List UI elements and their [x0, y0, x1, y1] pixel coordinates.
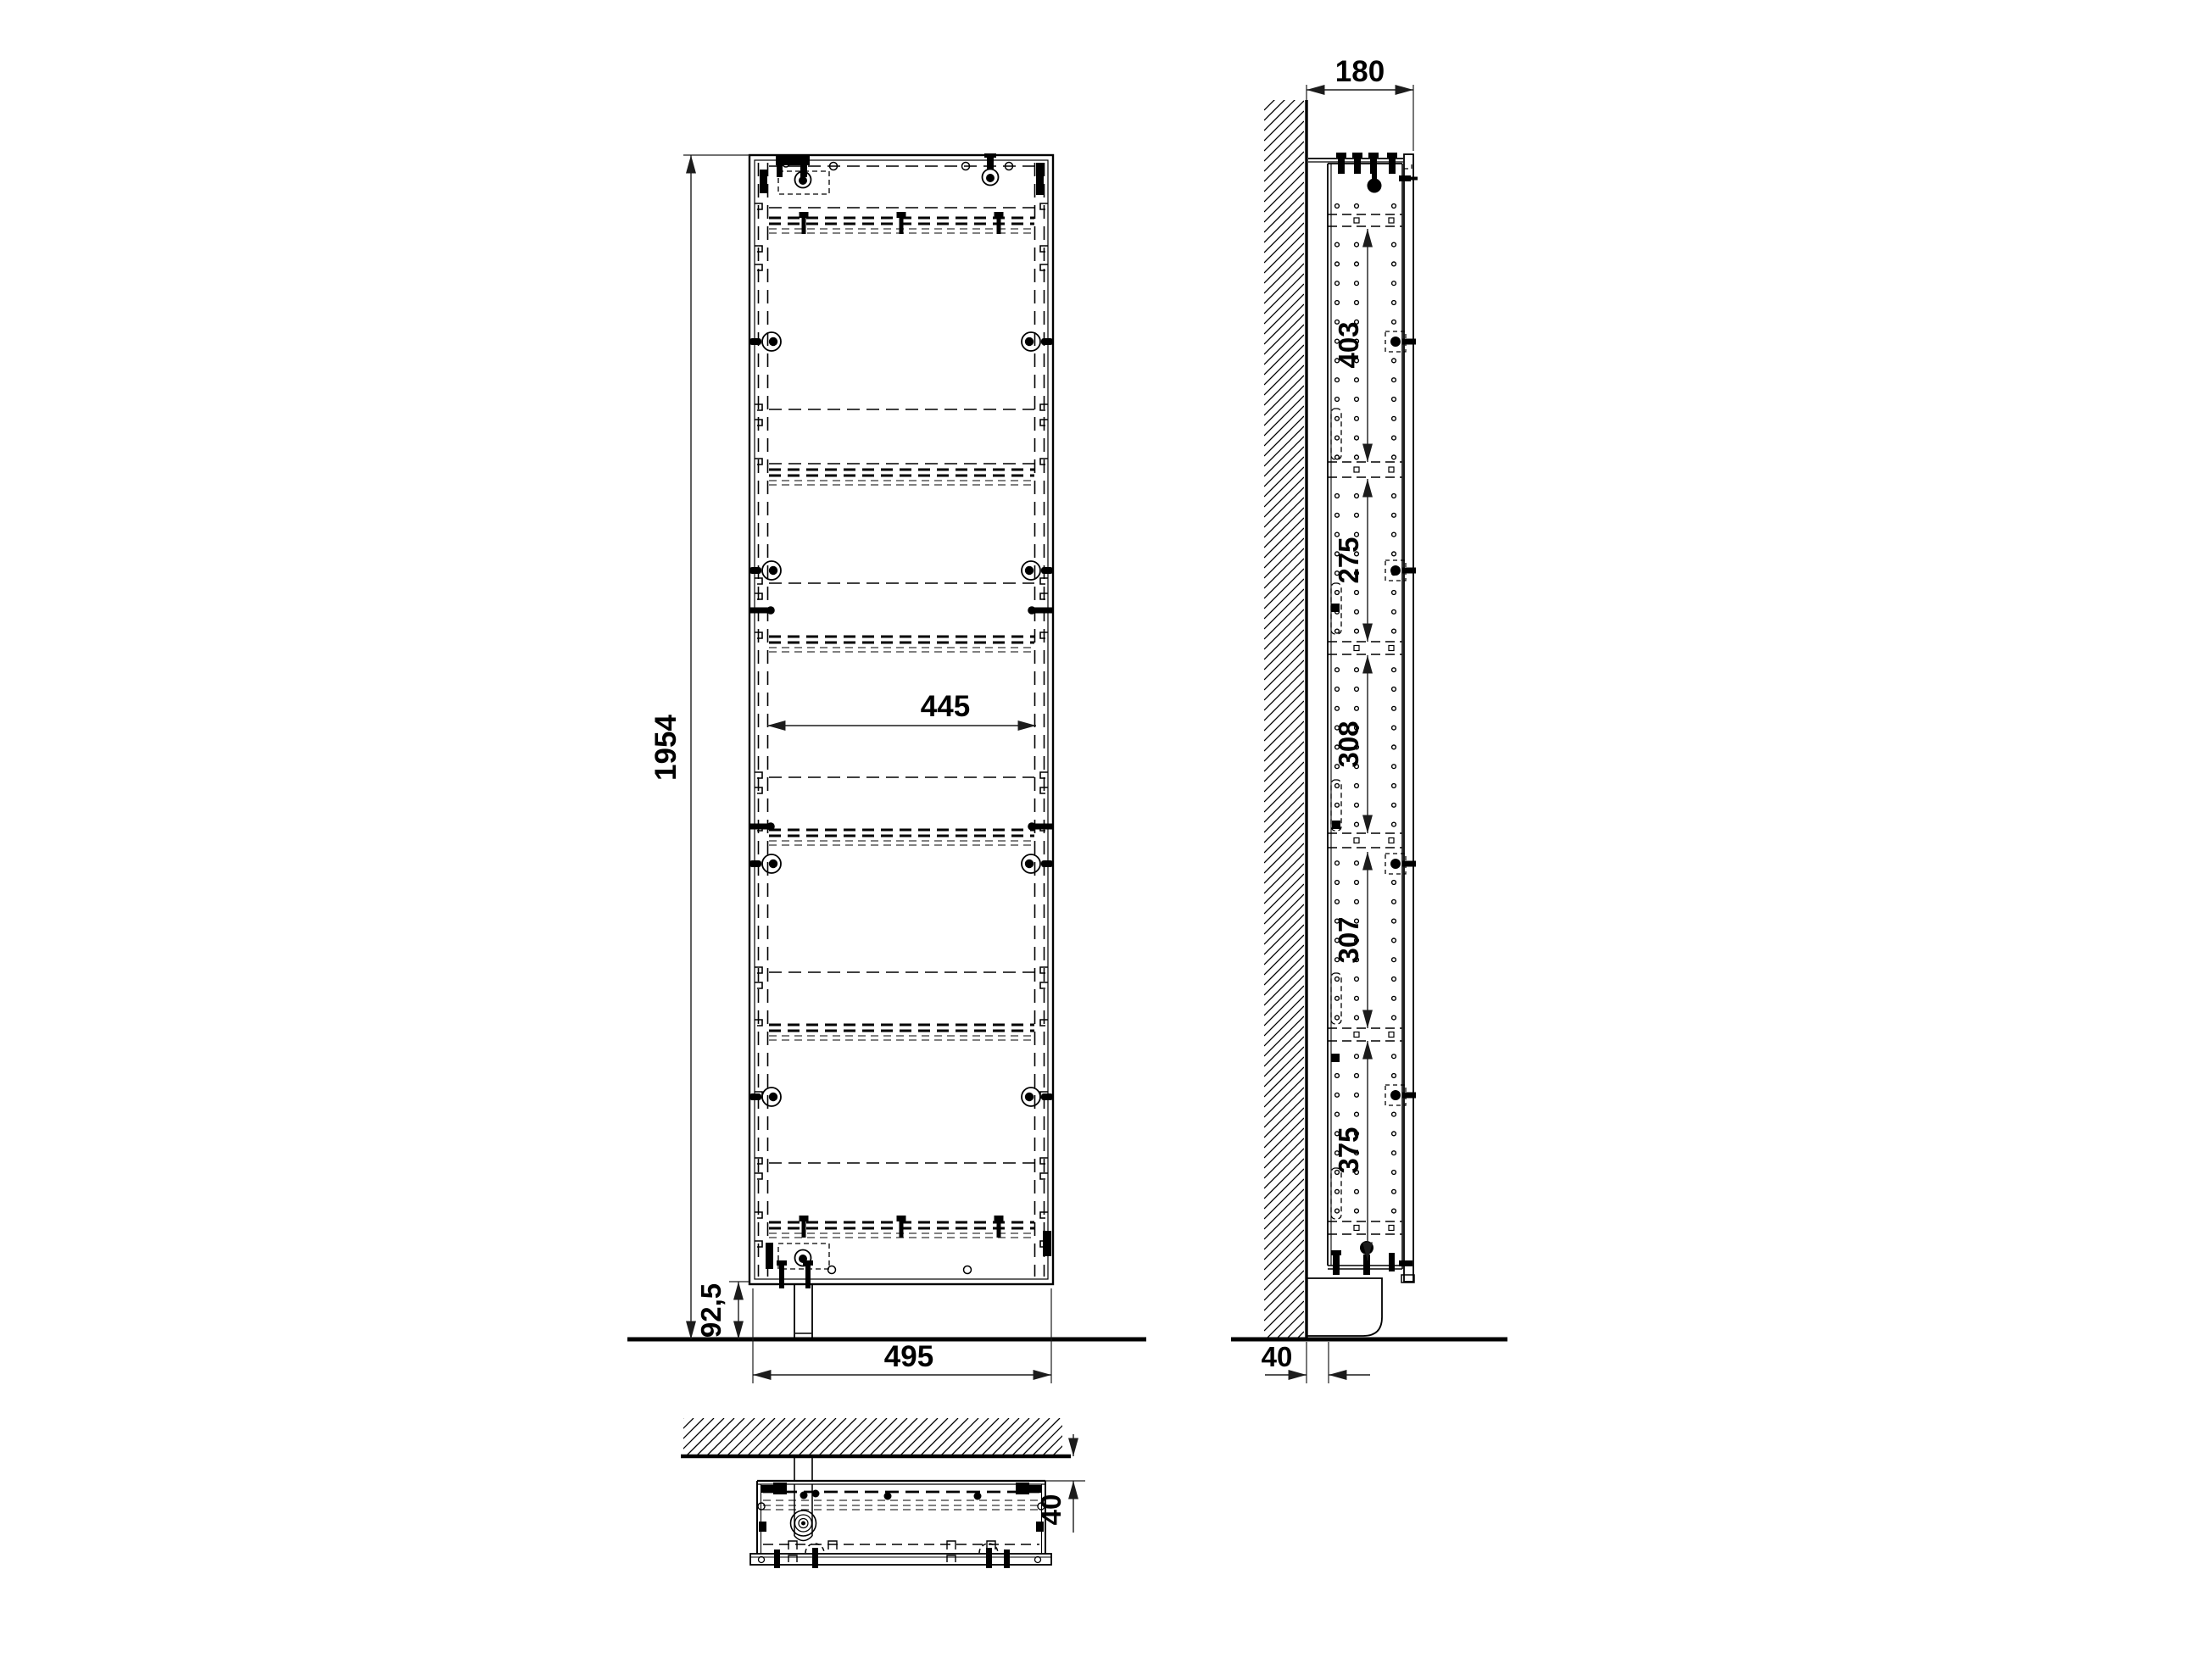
hatch-line: [1264, 823, 1304, 863]
hinge-pin: [1402, 568, 1416, 574]
side-bolt: [1034, 608, 1052, 614]
shelf-fitting: [1354, 467, 1359, 472]
hatch-line: [1264, 162, 1304, 202]
hatch-line: [1264, 335, 1304, 375]
hatch-line: [1012, 1418, 1050, 1455]
system-hole: [1392, 242, 1396, 247]
system-hole: [1355, 281, 1359, 286]
system-hole: [1335, 242, 1340, 247]
system-hole: [1355, 977, 1359, 982]
hatch-line: [1264, 264, 1304, 303]
hatch-line: [1264, 131, 1304, 171]
system-hole: [1392, 513, 1396, 517]
hatch-line: [1264, 915, 1304, 954]
side-bottom-hardware: [1331, 1241, 1412, 1275]
system-hole: [1392, 1015, 1396, 1020]
hatch-line: [931, 1418, 968, 1455]
hatch-line: [839, 1418, 877, 1455]
system-hole: [1392, 784, 1396, 788]
hatch-line: [1264, 813, 1304, 853]
foot-center: [801, 1522, 805, 1526]
hatch-line: [1264, 528, 1304, 568]
fixing-pin-head: [800, 1216, 809, 1221]
system-hole: [1355, 1054, 1359, 1059]
hinge-pin: [1402, 861, 1416, 867]
fitting-bracket: [1040, 578, 1048, 584]
system-hole: [1335, 262, 1340, 266]
fixing-pin-head: [897, 1216, 906, 1221]
door-slab: [1404, 154, 1413, 1282]
hatch-line: [1264, 1037, 1304, 1077]
system-hole: [1355, 1093, 1359, 1097]
hinge-axis: [1390, 859, 1401, 869]
hatch-line: [880, 1418, 917, 1455]
system-hole: [1392, 1151, 1396, 1155]
hinge-pin: [749, 338, 761, 345]
dimension-label-width: 495: [884, 1340, 933, 1373]
front-carcass-edges-hidden: [759, 163, 1045, 1277]
system-hole: [1335, 532, 1340, 537]
system-hole: [1335, 1074, 1340, 1078]
hatch-line: [1264, 487, 1304, 527]
system-hole: [1355, 398, 1359, 402]
system-hole: [1335, 629, 1340, 633]
hatch-line: [1264, 1067, 1304, 1107]
system-hole: [1392, 1189, 1396, 1193]
back-fitting: [1332, 821, 1340, 829]
system-hole: [1355, 706, 1359, 710]
system-hole: [1392, 706, 1396, 710]
hatch-line: [1264, 142, 1304, 181]
dimension-label-height: 1954: [649, 715, 683, 781]
hatch-line: [1264, 152, 1304, 192]
front-screw-tip: [1411, 177, 1418, 181]
system-hole: [1335, 977, 1340, 982]
hatch-line: [1264, 437, 1304, 476]
side-bolt: [1034, 824, 1052, 830]
hinge-pin: [1402, 1093, 1416, 1099]
clip: [947, 1541, 956, 1550]
hatch-line: [941, 1418, 978, 1455]
system-hole: [1355, 436, 1359, 440]
hatch-line: [1264, 579, 1304, 619]
shelf-fitting: [1389, 1032, 1394, 1038]
bolt-head: [1387, 153, 1397, 158]
hatch-line: [1264, 538, 1304, 578]
fixing-pin-head: [897, 212, 906, 218]
hatch-line: [1264, 904, 1304, 944]
hatch-line: [1264, 1108, 1304, 1148]
technical-drawing-canvas: 1954 92,5 445 495 180: [0, 0, 2212, 1658]
hinge-pin: [1004, 1550, 1010, 1568]
front-foot: [794, 1284, 812, 1338]
system-hole: [1335, 996, 1340, 1000]
hatch-line: [1264, 986, 1304, 1026]
hatch-line: [1264, 1077, 1304, 1117]
hanger-cam-pin: [986, 174, 995, 182]
front-side-bolts: [750, 606, 1052, 831]
hatch-line: [707, 1418, 744, 1455]
shelf-fitting: [1389, 838, 1394, 843]
system-hole: [1392, 629, 1396, 633]
side-bolt-tip: [1028, 822, 1036, 831]
system-hole: [1392, 378, 1396, 382]
hatch-line: [727, 1418, 765, 1455]
system-hole: [1392, 301, 1396, 305]
hatch-line: [1264, 650, 1304, 690]
bolt: [1389, 1253, 1395, 1271]
system-hole: [1355, 455, 1359, 459]
bolt-head: [1352, 153, 1362, 158]
hatch-line: [809, 1418, 846, 1455]
system-hole: [1392, 881, 1396, 885]
dowel: [812, 1490, 820, 1498]
hinge-pin: [1041, 860, 1053, 867]
hatch-line: [1264, 498, 1304, 537]
hinge-axis: [1390, 337, 1401, 347]
system-hole: [1392, 919, 1396, 923]
hatch-line: [1264, 589, 1304, 629]
system-hole: [1355, 822, 1359, 826]
hatch-line: [1264, 803, 1304, 843]
hatch-line: [1033, 1418, 1070, 1455]
system-hole: [1355, 204, 1359, 209]
system-hole: [1355, 591, 1359, 595]
hatch-line: [1264, 1159, 1304, 1199]
shelf-fitting: [1389, 218, 1394, 223]
system-hole: [1392, 416, 1396, 420]
hatch-line: [1264, 1006, 1304, 1046]
system-hole: [1355, 1074, 1359, 1078]
system-hole: [1335, 1112, 1340, 1116]
system-hole: [1335, 591, 1340, 595]
fitting-bracket: [1040, 1173, 1048, 1179]
hinge-pin: [1402, 339, 1416, 345]
hatch-line: [850, 1418, 887, 1455]
hatch-line: [1264, 325, 1304, 364]
dimension-label-shelf-3: 308: [1333, 721, 1364, 767]
hinge-axis: [769, 337, 777, 346]
hanger-cam-pin: [799, 176, 807, 185]
side-bolt-tip: [1028, 606, 1036, 615]
system-hole: [1392, 609, 1396, 614]
hatch-line: [717, 1418, 755, 1455]
hatch-line: [1264, 192, 1304, 232]
system-hole: [1392, 359, 1396, 363]
hatch-line: [1264, 1118, 1304, 1158]
hatch-line: [1264, 772, 1304, 812]
hatch-line: [951, 1418, 989, 1455]
hatch-line: [1264, 691, 1304, 731]
system-hole: [1335, 398, 1340, 402]
hatch-line: [1264, 1189, 1304, 1229]
hatch-line: [1264, 569, 1304, 609]
side-foot-plinth: [1307, 1278, 1382, 1336]
hinge-pin: [1041, 1093, 1053, 1100]
hatch-line: [1264, 1260, 1304, 1300]
fitting-bracket: [755, 772, 762, 778]
hatch-line: [992, 1418, 1029, 1455]
hatch-line: [1264, 274, 1304, 314]
system-hole: [1355, 242, 1359, 247]
dimension-label-shelf-5: 375: [1333, 1127, 1364, 1173]
hatch-line: [1264, 213, 1304, 253]
foot-bolt: [779, 1263, 784, 1288]
hatch-line: [1264, 843, 1304, 883]
hatch-line: [1264, 396, 1304, 436]
front-shelf-rail-groups: [769, 218, 1034, 1238]
front-screw: [1399, 175, 1411, 181]
hatch-line: [1264, 365, 1304, 405]
system-hole: [1392, 996, 1396, 1000]
dimensions: 1954 92,5 445 495 180: [649, 55, 1413, 1533]
system-hole: [1355, 494, 1359, 498]
hatch-line: [1264, 386, 1304, 426]
hatch-line: [982, 1418, 1019, 1455]
hatch-line: [1264, 660, 1304, 700]
hatch-line: [1264, 559, 1304, 598]
dowel: [800, 1492, 808, 1499]
top-corner-hardware: [758, 1483, 1045, 1532]
hatch-line: [1264, 996, 1304, 1036]
side-bolt: [750, 608, 769, 614]
back-fitting: [1331, 1054, 1340, 1062]
front-hinge-fittings: [749, 332, 1053, 1106]
dimension-label-shelf-2: 275: [1333, 537, 1364, 583]
hatch-line: [1022, 1418, 1060, 1455]
hatch-line: [1264, 1301, 1304, 1341]
hatch-line: [1264, 782, 1304, 822]
hatch-line: [1264, 599, 1304, 639]
hatch-line: [1264, 640, 1304, 680]
system-hole: [1355, 262, 1359, 266]
hatch-line: [1264, 243, 1304, 283]
dimension-label-shelf-1: 403: [1333, 321, 1364, 368]
dimension-label-plinth: 92,5: [695, 1283, 727, 1338]
system-hole: [1392, 455, 1396, 459]
dimension-label-depth: 180: [1335, 55, 1385, 88]
hatch-line: [1264, 376, 1304, 415]
front-screw: [1399, 1260, 1412, 1266]
bracket: [1016, 1483, 1029, 1494]
system-hole: [1355, 1189, 1359, 1193]
clip: [947, 1555, 956, 1562]
hinge-pin: [749, 1093, 761, 1100]
wall-hatch: [1264, 70, 1304, 1371]
hanger-pin-head: [984, 153, 996, 158]
hatch-line: [1264, 518, 1304, 558]
hatch-line: [1264, 70, 1304, 110]
bolt: [1338, 155, 1345, 174]
dim-depth: 180: [1307, 55, 1413, 151]
system-hole: [1355, 996, 1359, 1000]
hatch-line: [1264, 945, 1304, 985]
hatch-line: [890, 1418, 928, 1455]
system-hole: [1335, 416, 1340, 420]
hatch-line: [1264, 467, 1304, 507]
hanger-block: [776, 155, 810, 165]
shelf-fitting: [1354, 218, 1359, 223]
hatch-line: [1264, 1098, 1304, 1138]
door-corner-hidden: [1404, 162, 1412, 169]
hatch-line: [1264, 1057, 1304, 1097]
back-fitting: [1331, 604, 1340, 612]
hatch-line: [1264, 355, 1304, 395]
system-hole: [1335, 513, 1340, 517]
system-hole: [1335, 1209, 1340, 1213]
dim-overall-height: 1954: [649, 155, 749, 1339]
hatch-line: [1264, 681, 1304, 721]
hatch-line: [1043, 1418, 1080, 1455]
adjuster-stem: [1372, 164, 1377, 179]
hatch-line: [778, 1418, 816, 1455]
dimension-label-wall-gap-top: 40: [1035, 1494, 1067, 1526]
hatch-line: [1264, 548, 1304, 588]
side-bolt-tip: [766, 606, 775, 615]
hatch-line: [1264, 1088, 1304, 1127]
dim-shelf-spacing-chain: 403 275 308 307 375: [1333, 229, 1368, 1260]
system-hole: [1355, 1112, 1359, 1116]
system-hole: [1335, 1093, 1340, 1097]
hatch-line: [1264, 81, 1304, 120]
hinge-axis: [1390, 565, 1401, 576]
system-hole: [1392, 668, 1396, 672]
system-hole: [1355, 1209, 1359, 1213]
hatch-line: [1264, 345, 1304, 385]
clip: [788, 1555, 797, 1562]
hinge-pin: [749, 860, 761, 867]
system-hole: [1392, 899, 1396, 904]
shelf-fitting: [1389, 467, 1394, 472]
system-hole: [1355, 513, 1359, 517]
hinge-axis: [1390, 1090, 1401, 1100]
system-hole: [1392, 281, 1396, 286]
hatch-line: [1264, 1240, 1304, 1280]
bracket: [773, 1483, 787, 1494]
hatch-line: [921, 1418, 958, 1455]
system-hole: [1335, 281, 1340, 286]
hatch-line: [1264, 1149, 1304, 1188]
bottom-bar-right: [1043, 1231, 1051, 1256]
hatch-line: [1264, 416, 1304, 456]
hatch-line: [1264, 884, 1304, 924]
hinge-axis: [1025, 860, 1034, 868]
hatch-line: [1264, 1047, 1304, 1087]
hatch-line: [666, 1418, 704, 1455]
hatch-line: [1264, 253, 1304, 293]
system-hole: [1392, 1171, 1396, 1175]
system-hole: [1392, 958, 1396, 962]
system-hole: [1335, 1189, 1340, 1193]
hinge-pin: [986, 1548, 992, 1568]
system-hole: [1355, 378, 1359, 382]
system-hole: [1355, 668, 1359, 672]
system-hole: [1335, 378, 1340, 382]
screw-hole: [1035, 1557, 1041, 1563]
system-hole: [1392, 745, 1396, 749]
front-bottom-hardware: [766, 1231, 1051, 1288]
system-hole: [1392, 591, 1396, 595]
hatch-line: [1264, 742, 1304, 782]
hanger-bar-left: [760, 170, 767, 193]
system-hole: [1355, 687, 1359, 692]
hatch-line: [1264, 609, 1304, 649]
system-hole: [1335, 301, 1340, 305]
hatch-line: [1264, 1027, 1304, 1066]
hatch-line: [1264, 894, 1304, 934]
hinge-axis: [769, 860, 777, 868]
dowel: [884, 1493, 892, 1500]
system-hole: [1392, 687, 1396, 692]
shelf-fitting: [1354, 1226, 1359, 1231]
front-door-outline: [749, 155, 1053, 1284]
dowel: [974, 1493, 982, 1500]
hatch-line: [1264, 233, 1304, 273]
system-hole: [1335, 204, 1340, 209]
hatch-line: [646, 1418, 683, 1455]
hatch-line: [1264, 711, 1304, 751]
hatch-line: [1264, 925, 1304, 965]
hinge-pin: [749, 567, 761, 574]
system-hole: [1355, 784, 1359, 788]
system-hole: [1335, 899, 1340, 904]
system-hole: [1335, 687, 1340, 692]
system-hole: [1335, 784, 1340, 788]
hinge-pin: [812, 1548, 818, 1568]
dim-inner-width: 445: [767, 690, 1036, 726]
system-hole: [1355, 609, 1359, 614]
wall-hatch: [646, 1418, 1090, 1455]
hatch-line: [1264, 793, 1304, 832]
hatch-line: [1264, 304, 1304, 344]
fixing-pin-head: [995, 212, 1004, 218]
shelf-fitting: [1354, 1032, 1359, 1038]
hatch-line: [1264, 477, 1304, 517]
hatch-line: [1264, 701, 1304, 741]
clip: [828, 1541, 837, 1550]
clip: [788, 1541, 797, 1550]
dimension-label-inner-width: 445: [921, 690, 970, 723]
front-door-inner-outline: [755, 160, 1048, 1279]
system-hole: [1355, 416, 1359, 420]
hatch-line: [1264, 508, 1304, 548]
bolt: [1389, 155, 1396, 174]
hatch-line: [1264, 620, 1304, 659]
foot-housing-end: [794, 1536, 812, 1541]
hatch-line: [1264, 721, 1304, 761]
system-hole: [1392, 398, 1396, 402]
system-hole: [1335, 1015, 1340, 1020]
system-hole: [1392, 262, 1396, 266]
hatch-line: [1264, 91, 1304, 131]
fitting-bracket: [755, 1173, 762, 1179]
system-hole: [1392, 1112, 1396, 1116]
hatch-line: [677, 1418, 714, 1455]
hatch-line: [1264, 1179, 1304, 1219]
dim-plinth-height: 92,5: [695, 1282, 749, 1339]
hatch-line: [1264, 1199, 1304, 1239]
adjuster-stem: [1363, 1255, 1370, 1275]
system-hole: [1392, 726, 1396, 730]
hatch-line: [1264, 833, 1304, 873]
front-shelf-hidden-lines: [769, 166, 1034, 1163]
hatch-line: [1264, 457, 1304, 497]
screw-hole: [828, 1266, 836, 1274]
hatch-line: [860, 1418, 897, 1455]
hatch-line: [1264, 670, 1304, 710]
fitting-bracket: [755, 982, 762, 988]
shelf-fitting: [1354, 646, 1359, 651]
